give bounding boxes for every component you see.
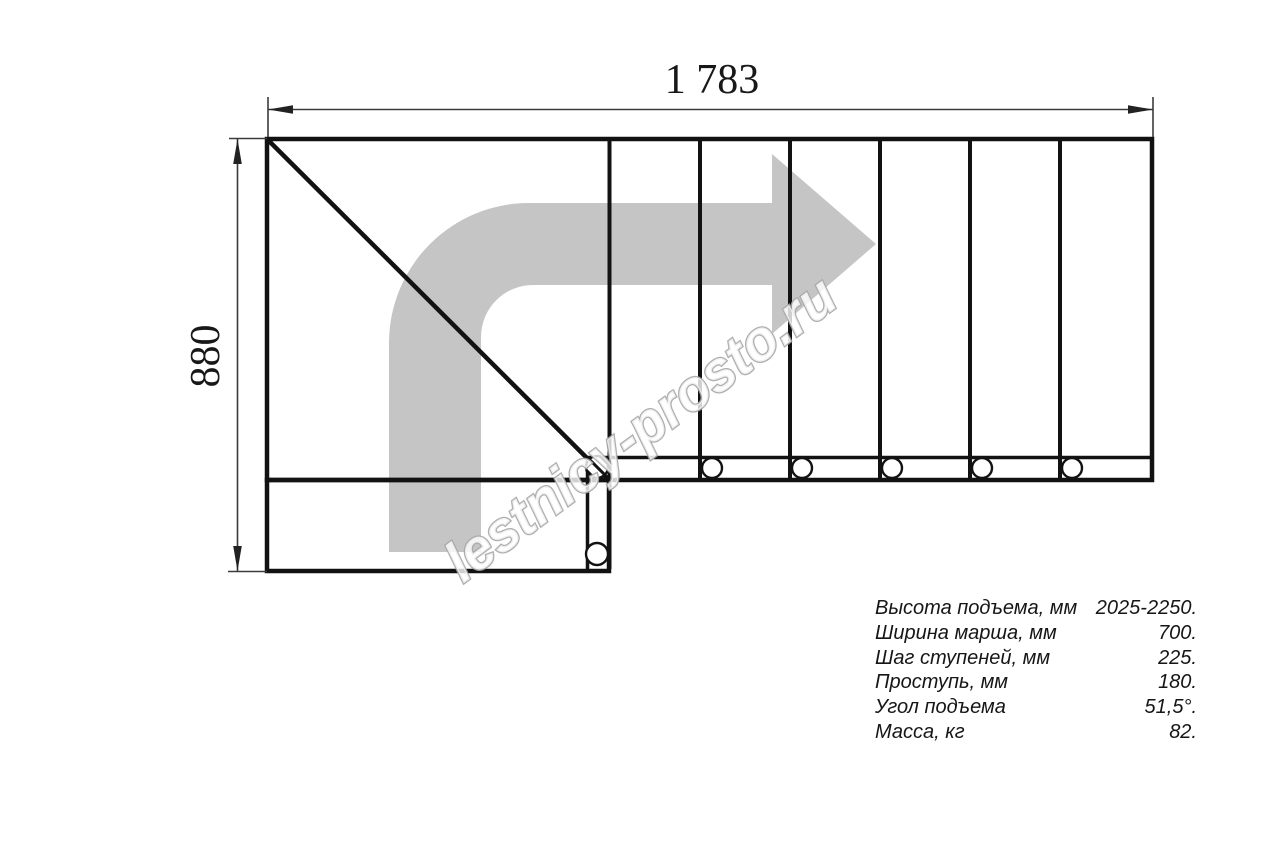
watermark-text: lestnicy-prosto.ru	[433, 263, 849, 594]
dimension-arrowhead-icon	[1128, 105, 1153, 114]
post-marker	[882, 458, 902, 478]
spec-value: 2025-2250.	[1096, 596, 1197, 621]
spec-row: Шаг ступеней, мм 225.	[875, 646, 1197, 671]
spec-label: Масса, кг	[875, 720, 965, 745]
spec-value: 700.	[1158, 621, 1197, 646]
spec-row: Ширина марша, мм 700.	[875, 621, 1197, 646]
spec-table: Высота подъема, мм 2025-2250. Ширина мар…	[875, 596, 1197, 745]
dimension-arrowhead-icon	[268, 105, 293, 114]
height-dimension	[228, 139, 267, 572]
post-marker	[702, 458, 722, 478]
spec-value: 225.	[1158, 646, 1197, 671]
post-marker	[586, 543, 608, 565]
spec-value: 51,5°.	[1145, 695, 1197, 720]
post-marker	[972, 458, 992, 478]
post-marker	[792, 458, 812, 478]
spec-row: Высота подъема, мм 2025-2250.	[875, 596, 1197, 621]
spec-label: Проступь, мм	[875, 670, 1008, 695]
height-dimension-label: 880	[184, 296, 228, 416]
width-dimension	[268, 97, 1153, 137]
spec-row: Проступь, мм 180.	[875, 670, 1197, 695]
spec-row: Масса, кг 82.	[875, 720, 1197, 745]
spec-label: Ширина марша, мм	[875, 621, 1057, 646]
post-marker	[1062, 458, 1082, 478]
stair-plan-page: lestnicy-prosto.ru 1 783 880 Высота подъ…	[0, 0, 1280, 853]
spec-label: Шаг ступеней, мм	[875, 646, 1050, 671]
spec-label: Высота подъема, мм	[875, 596, 1077, 621]
spec-label: Угол подъема	[875, 695, 1006, 720]
dimension-arrowhead-icon	[233, 139, 242, 164]
dimension-arrowhead-icon	[233, 546, 242, 571]
spec-row: Угол подъема 51,5°.	[875, 695, 1197, 720]
width-dimension-label: 1 783	[612, 58, 812, 102]
stair-direction-arrow	[389, 154, 876, 552]
spec-value: 82.	[1169, 720, 1197, 745]
spec-value: 180.	[1158, 670, 1197, 695]
